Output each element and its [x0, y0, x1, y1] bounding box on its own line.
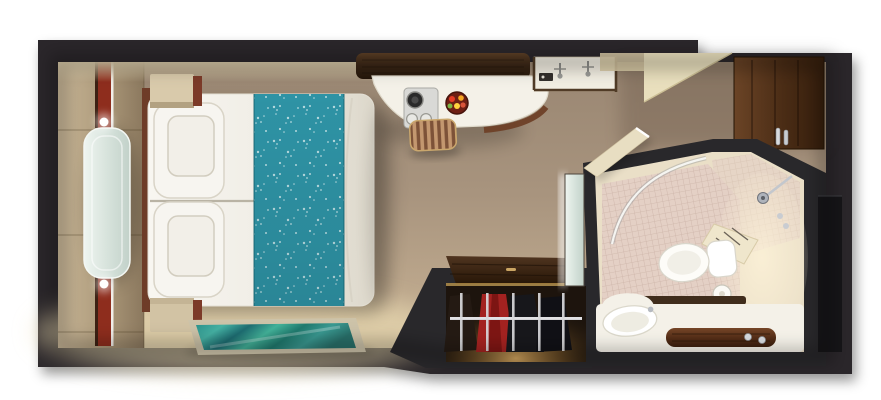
floorplan-stage: [0, 0, 881, 400]
nightstand-top: [150, 74, 202, 108]
wall-light-bottom: [100, 280, 109, 289]
pillow-small: [168, 116, 214, 176]
wall-light-top: [100, 118, 109, 127]
headboard-wall: [58, 62, 144, 348]
nightstand-accent: [193, 76, 202, 106]
teal-runner-shade: [254, 94, 344, 306]
pillow-set-top: [154, 103, 224, 198]
cabin-door: [734, 57, 824, 149]
toilet-tank: [706, 239, 738, 278]
bed: [142, 88, 394, 314]
door-handle-bar: [784, 130, 788, 145]
fruit: [449, 96, 455, 102]
dresser-handle: [506, 268, 516, 271]
fruit-bowl: [446, 92, 468, 114]
shower-valve: [783, 223, 789, 229]
kettle-lid: [411, 96, 418, 103]
stool: [407, 119, 461, 160]
floorplan-render: [0, 0, 881, 400]
floorplan: [35, 40, 852, 374]
tray-knob: [759, 337, 766, 344]
door-handle-bar: [776, 128, 780, 145]
fruit: [454, 103, 460, 109]
shower-valve: [777, 213, 783, 219]
fruit: [448, 104, 453, 109]
nightstand-side: [150, 298, 194, 304]
light-switch-dot: [542, 76, 545, 79]
fruit: [458, 95, 464, 101]
glass-console: [84, 128, 130, 278]
bathroom: [560, 128, 842, 366]
stool-top: [409, 119, 457, 151]
fruit: [460, 102, 465, 107]
pillow-small: [168, 216, 214, 276]
pillow-set-bottom: [154, 202, 224, 297]
tray-knob: [745, 334, 752, 341]
full-length-mirror: [565, 174, 584, 286]
nightstand-side: [150, 102, 194, 108]
shower-head-center: [761, 196, 765, 200]
light-switch: [539, 73, 553, 81]
